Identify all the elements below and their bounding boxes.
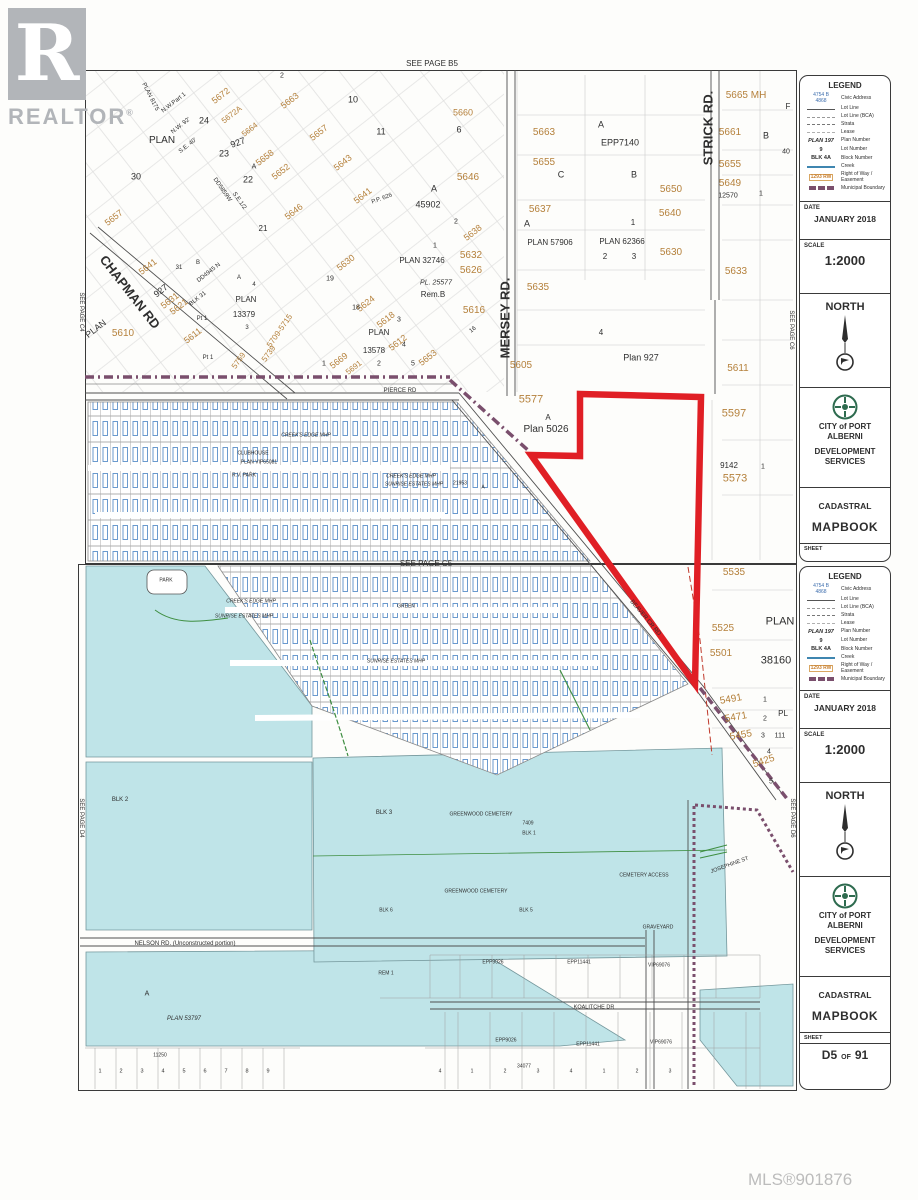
- cadastral-section: CADASTRAL MAPBOOK: [800, 977, 890, 1033]
- legend-rows: 4754 B4868Civic AddressLot LineLot Line …: [804, 584, 886, 683]
- legend-title: LEGEND: [804, 572, 886, 581]
- date-section: DATE JANUARY 2018: [800, 691, 890, 729]
- legend-row: BLK 4ABlock Number: [804, 155, 886, 162]
- legend-row: Lot Line (BCA): [804, 605, 886, 611]
- north-arrow-icon: [830, 313, 860, 375]
- legend-row: 9Lot Number: [804, 638, 886, 645]
- legend-row: Strata: [804, 613, 886, 619]
- cadastral-section: CADASTRAL MAPBOOK: [800, 488, 890, 544]
- north-section: NORTH: [800, 294, 890, 388]
- legend-row: PLAN 197Plan Number: [804, 629, 886, 636]
- scale-section: SCALE 1:2000: [800, 240, 890, 294]
- legend-row: BLK 4ABlock Number: [804, 646, 886, 653]
- legend-row: Lot Line (BCA): [804, 114, 886, 120]
- legend-section: LEGEND 4754 B4868Civic AddressLot LineLo…: [800, 76, 890, 202]
- north-arrow-icon: [830, 802, 860, 864]
- sidebar-panel-bottom: LEGEND 4754 B4868Civic AddressLot LineLo…: [799, 566, 891, 1090]
- sidebar-panel-top: LEGEND 4754 B4868Civic AddressLot LineLo…: [799, 75, 891, 562]
- legend-row: 1293 RWRight of Way / Easement: [804, 172, 886, 184]
- sheet-number: D5OF91: [800, 1044, 890, 1062]
- survey-grid: [86, 71, 504, 392]
- date-section: DATE JANUARY 2018: [800, 202, 890, 240]
- legend-row: Lot Line: [804, 106, 886, 112]
- legend-row: 4754 B4868Civic Address: [804, 93, 886, 104]
- legend-rows: 4754 B4868Civic AddressLot LineLot Line …: [804, 93, 886, 192]
- legend-row: Creek: [804, 164, 886, 170]
- map-graphics: [0, 0, 918, 1200]
- sheet-section: SHEET: [800, 544, 890, 554]
- legend-row: 9Lot Number: [804, 147, 886, 154]
- north-section: NORTH: [800, 783, 890, 877]
- legend-row: PLAN 197Plan Number: [804, 138, 886, 145]
- legend-title: LEGEND: [804, 81, 886, 90]
- mls-number: MLS®901876: [748, 1170, 852, 1190]
- city-crest-icon: [832, 883, 858, 909]
- legend-row: Municipal Boundary: [804, 186, 886, 193]
- legend-row: 4754 B4868Civic Address: [804, 584, 886, 595]
- city-section: CITY of PORT ALBERNI DEVELOPMENT SERVICE…: [800, 877, 890, 977]
- legend-section: LEGEND 4754 B4868Civic AddressLot LineLo…: [800, 567, 890, 691]
- sheet-section: SHEET: [800, 1033, 890, 1044]
- legend-row: Lease: [804, 621, 886, 627]
- city-section: CITY of PORT ALBERNI DEVELOPMENT SERVICE…: [800, 388, 890, 488]
- legend-row: Lot Line: [804, 597, 886, 603]
- realtor-logo: R REALTOR®: [8, 8, 135, 130]
- realtor-logo-word: REALTOR®: [8, 104, 135, 130]
- legend-row: Lease: [804, 130, 886, 136]
- legend-row: 1293 RWRight of Way / Easement: [804, 663, 886, 675]
- legend-row: Creek: [804, 655, 886, 661]
- scale-section: SCALE 1:2000: [800, 729, 890, 783]
- realtor-logo-icon: R: [8, 8, 86, 100]
- legend-row: Municipal Boundary: [804, 677, 886, 684]
- legend-row: Strata: [804, 122, 886, 128]
- city-crest-icon: [832, 394, 858, 420]
